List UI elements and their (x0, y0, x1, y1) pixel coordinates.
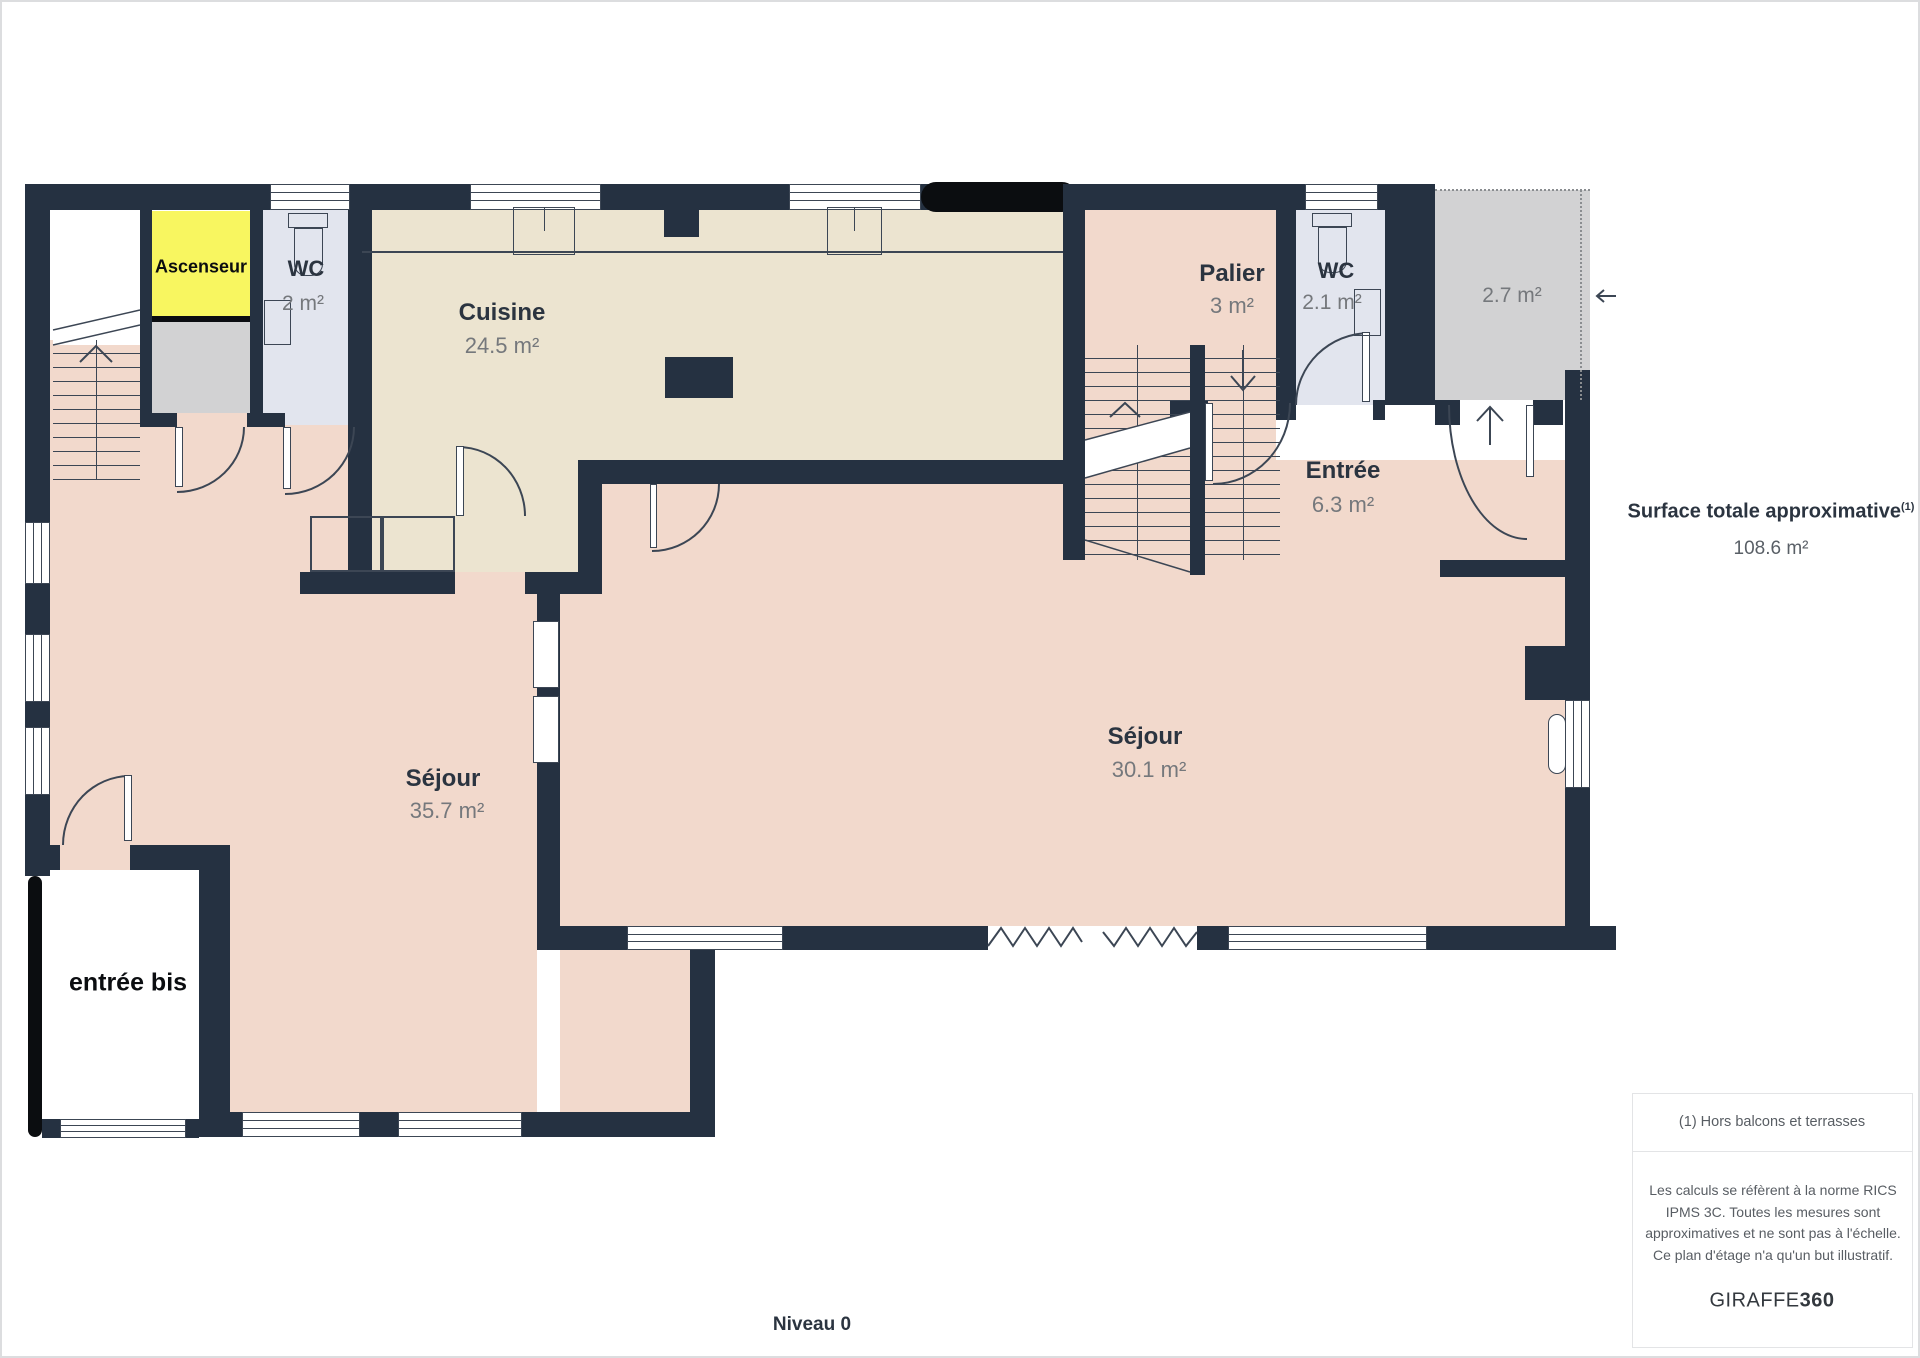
room-label-entree-bis: entrée bis (69, 969, 187, 998)
floor-plan-page: Ascenseur WC 2 m² Cuisine 24.5 m² Palier… (0, 0, 1920, 1358)
room-label-cuisine: Cuisine (459, 299, 546, 327)
sidebar-total-area: 108.6 m² (1734, 538, 1809, 560)
sidebar-divider (1632, 1151, 1913, 1152)
room-area-sejour2: 30.1 m² (1112, 757, 1187, 783)
sidebar-divider (1632, 1347, 1913, 1348)
sidebar-title: Surface totale approximative(1) (1628, 501, 1915, 524)
sidebar-footnote: (1) Hors balcons et terrasses (1679, 1114, 1865, 1130)
stairs-down-arrow-icon (1231, 350, 1255, 390)
room-area-cuisine: 24.5 m² (465, 333, 540, 359)
sidebar-divider (1632, 1093, 1913, 1094)
stairs-break-icon (53, 310, 140, 345)
room-label-wc2: WC (1318, 258, 1355, 284)
room-area-sejour1: 35.7 m² (410, 798, 485, 824)
stairs-break-icon (1085, 412, 1190, 572)
room-area-wc1: 2 m² (282, 292, 324, 316)
room-area-entree: 6.3 m² (1312, 492, 1374, 518)
room-label-sejour2: Séjour (1108, 723, 1183, 751)
room-label-ascenseur: Ascenseur (155, 257, 247, 278)
sidebar-border (1632, 1093, 1633, 1348)
accordion-window-icon (988, 928, 1197, 946)
brand-logo: GIRAFFE360 (1709, 1290, 1834, 1313)
sidebar-border (1912, 1093, 1913, 1348)
stairs-up-arrow-icon (80, 346, 112, 362)
room-label-sejour1: Séjour (406, 765, 481, 793)
brand-logo-bold: 360 (1800, 1290, 1835, 1312)
sidebar-legal-text: Les calculs se réfèrent à la norme RICS … (1640, 1180, 1906, 1267)
plan-symbols (0, 0, 1616, 1358)
brand-logo-regular: GIRAFFE (1709, 1290, 1799, 1312)
entry-left-arrow-icon (1597, 290, 1616, 302)
level-label: Niveau 0 (773, 1314, 851, 1336)
stairs-up-arrow-icon (1110, 403, 1140, 417)
room-label-palier: Palier (1199, 260, 1264, 288)
entry-up-arrow-icon (1477, 407, 1503, 445)
room-area-balcony: 2.7 m² (1482, 284, 1542, 308)
room-area-wc2: 2.1 m² (1302, 291, 1362, 315)
sidebar-title-text: Surface totale approximative (1628, 501, 1901, 523)
room-label-wc1: WC (288, 256, 325, 282)
room-label-entree: Entrée (1306, 457, 1381, 485)
room-area-palier: 3 m² (1210, 293, 1254, 319)
sidebar-title-footnote-mark: (1) (1901, 501, 1914, 513)
